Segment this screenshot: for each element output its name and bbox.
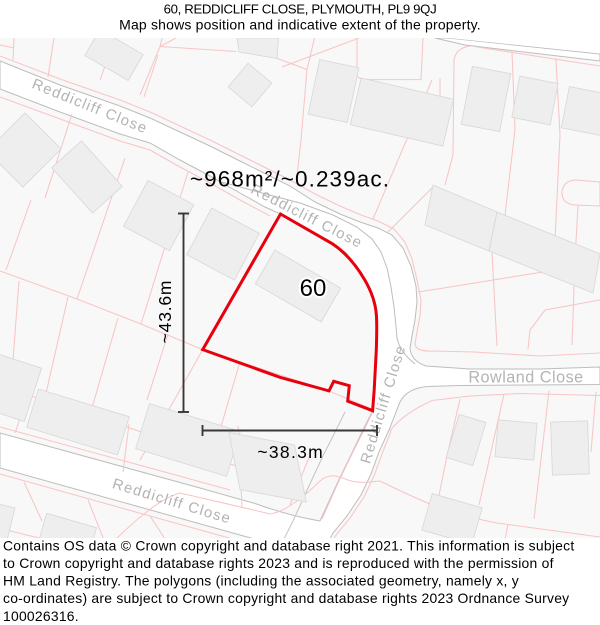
svg-text:Contains OS data © Crown copyr: Contains OS data © Crown copyright and d… xyxy=(3,537,574,553)
svg-text:Rowland Close: Rowland Close xyxy=(468,369,583,387)
svg-text:to Crown copyright and databas: to Crown copyright and database rights 2… xyxy=(3,555,554,571)
svg-text:~968m²/~0.239ac.: ~968m²/~0.239ac. xyxy=(190,166,390,191)
svg-text:HM Land Registry. The polygons: HM Land Registry. The polygons (includin… xyxy=(3,573,519,589)
svg-text:Map shows position and indicat: Map shows position and indicative extent… xyxy=(119,17,481,33)
svg-text:60, REDDICLIFF CLOSE, PLYMOUTH: 60, REDDICLIFF CLOSE, PLYMOUTH, PL9 9QJ xyxy=(164,2,437,17)
svg-text:co-ordinates) are subject to C: co-ordinates) are subject to Crown copyr… xyxy=(3,590,569,606)
svg-text:~38.3m: ~38.3m xyxy=(257,442,324,462)
svg-text:100026316.: 100026316. xyxy=(3,608,79,624)
svg-text:~43.6m: ~43.6m xyxy=(155,280,175,344)
svg-text:60: 60 xyxy=(300,275,327,302)
